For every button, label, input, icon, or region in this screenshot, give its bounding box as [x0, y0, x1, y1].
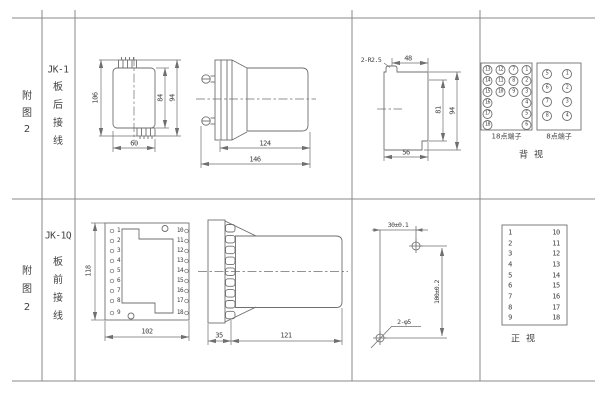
- terminal-number: 6: [117, 278, 120, 284]
- terminal-number: 6: [525, 123, 528, 128]
- terminal-number: 2: [525, 79, 528, 84]
- terminal-number: 8: [512, 79, 515, 84]
- dim-label: 30±0.1: [388, 222, 408, 229]
- terminal-number: 16: [177, 288, 183, 294]
- dim-label: 102: [141, 328, 152, 335]
- manual-page: 附 图 2 JK-1 板 后 接 线 106 84 94 60 124 146 …: [0, 0, 600, 400]
- terminal-number: 7: [546, 100, 549, 105]
- terminal-number: 11: [177, 238, 183, 244]
- terminal-number: 4: [525, 101, 528, 106]
- dim-label: 106: [93, 92, 100, 103]
- dim-label: 94: [170, 94, 177, 101]
- terminal-number: 14: [485, 79, 490, 84]
- dim-label: 48: [404, 56, 411, 63]
- mount-label: 板: [53, 83, 63, 93]
- terminal-number: 13: [552, 262, 559, 269]
- terminal-number: 18: [485, 123, 490, 128]
- view-label-rear: 背视: [513, 152, 549, 161]
- terminal-number: 4: [117, 258, 120, 264]
- terminal-number: 5: [525, 112, 528, 117]
- mount-label: 线: [53, 137, 63, 147]
- dim-label: 100±0.2: [433, 280, 440, 304]
- dim-label: 124: [259, 140, 270, 147]
- terminal-number: 3: [117, 248, 120, 254]
- jk1q-side-view-dimensions: [208, 308, 342, 345]
- dim-label: 35: [215, 333, 222, 340]
- terminal-number: 1: [525, 68, 528, 73]
- terminal-number: 15: [485, 90, 490, 95]
- figure-row-label: 附: [22, 92, 32, 102]
- mount-label: 板: [53, 258, 63, 268]
- mount-label: 前: [53, 276, 63, 286]
- terminal-number: 16: [552, 294, 559, 301]
- terminal-number: 9: [512, 90, 515, 95]
- mount-label: 接: [53, 119, 63, 129]
- model-label: JK-1: [48, 65, 69, 75]
- terminal-number: 11: [498, 79, 503, 84]
- terminal-number: 17: [485, 112, 490, 117]
- terminal-number: 1: [566, 72, 569, 77]
- dim-label: 121: [280, 333, 291, 340]
- view-label-front: 正视: [505, 336, 541, 345]
- dim-label: 2-φ5: [397, 318, 411, 325]
- terminal-number: 5: [546, 72, 549, 77]
- terminal-number: 10: [177, 228, 183, 234]
- dim-label: 81: [436, 106, 443, 113]
- dim-label: 118: [86, 265, 93, 276]
- terminal-number: 10: [552, 230, 559, 237]
- terminal-number: 14: [552, 273, 559, 280]
- figure-row-label: 2: [24, 125, 30, 135]
- terminal-block-8-label: 8点端子: [546, 133, 571, 140]
- mount-label: 接: [53, 294, 63, 304]
- dim-label: 56: [402, 150, 409, 157]
- terminal-number: 18: [552, 315, 559, 322]
- figure-row-label: 图: [22, 109, 32, 119]
- dim-label: 94: [450, 107, 457, 114]
- terminal-number: 9: [117, 310, 120, 316]
- dim-label: 2-R2.5: [361, 57, 381, 64]
- terminal-number: 5: [508, 273, 512, 280]
- terminal-number: 15: [552, 283, 559, 290]
- terminal-number: 12: [552, 251, 559, 258]
- terminal-number: 5: [117, 268, 120, 274]
- terminal-number: 10: [498, 90, 503, 95]
- terminal-number: 1: [508, 230, 512, 237]
- mount-label: 后: [53, 101, 63, 111]
- terminal-number: 18: [177, 310, 183, 316]
- terminal-number: 7: [512, 68, 515, 73]
- figure-row-label: 2: [24, 303, 30, 313]
- jk1-panel-view-drawing: [377, 66, 428, 150]
- terminal-number: 2: [117, 238, 120, 244]
- terminal-number: 8: [508, 305, 512, 312]
- terminal-number: 17: [552, 305, 559, 312]
- terminal-number: 1: [117, 228, 120, 234]
- terminal-number: 2: [508, 241, 512, 248]
- terminal-number: 3: [566, 100, 569, 105]
- terminal-number: 14: [177, 268, 183, 274]
- model-label: JK-1Q: [45, 231, 71, 241]
- terminal-number: 12: [177, 248, 183, 254]
- terminal-number: 11: [552, 241, 559, 248]
- terminal-number: 7: [117, 288, 120, 294]
- jk1-front-view-drawing: [113, 57, 155, 141]
- terminal-number: 6: [508, 283, 512, 290]
- jk1q-front-view-dimensions: [91, 223, 189, 341]
- terminal-number: 15: [177, 278, 183, 284]
- terminal-number: 13: [177, 258, 183, 264]
- terminal-number: 2: [566, 86, 569, 91]
- figure-row-label: 图: [22, 285, 32, 295]
- terminal-number: 6: [546, 86, 549, 91]
- terminal-number: 7: [508, 294, 512, 301]
- terminal-number: 9: [508, 315, 512, 322]
- terminal-number: 16: [485, 101, 490, 106]
- dim-label: 146: [249, 156, 260, 163]
- dim-label: 84: [158, 94, 165, 101]
- terminal-number: 8: [117, 298, 120, 304]
- mount-label: 线: [53, 312, 63, 322]
- terminal-block-18-label: 18点端子: [492, 133, 522, 140]
- terminal-number: 13: [485, 68, 490, 73]
- terminal-number: 8: [546, 114, 549, 119]
- jk1-side-view-drawing: [196, 60, 316, 140]
- terminal-block-8-drawing: [537, 63, 581, 130]
- terminal-number: 3: [508, 251, 512, 258]
- figure-row-label: 附: [22, 267, 32, 277]
- terminal-number: 17: [177, 298, 183, 304]
- terminal-number: 3: [525, 90, 528, 95]
- terminal-number: 12: [498, 68, 503, 73]
- terminal-block-18-drawing: [481, 63, 532, 130]
- terminal-number: 4: [508, 262, 512, 269]
- terminal-number: 4: [566, 114, 569, 119]
- dim-label: 60: [130, 140, 137, 147]
- jk1q-side-view-drawing: [198, 220, 348, 323]
